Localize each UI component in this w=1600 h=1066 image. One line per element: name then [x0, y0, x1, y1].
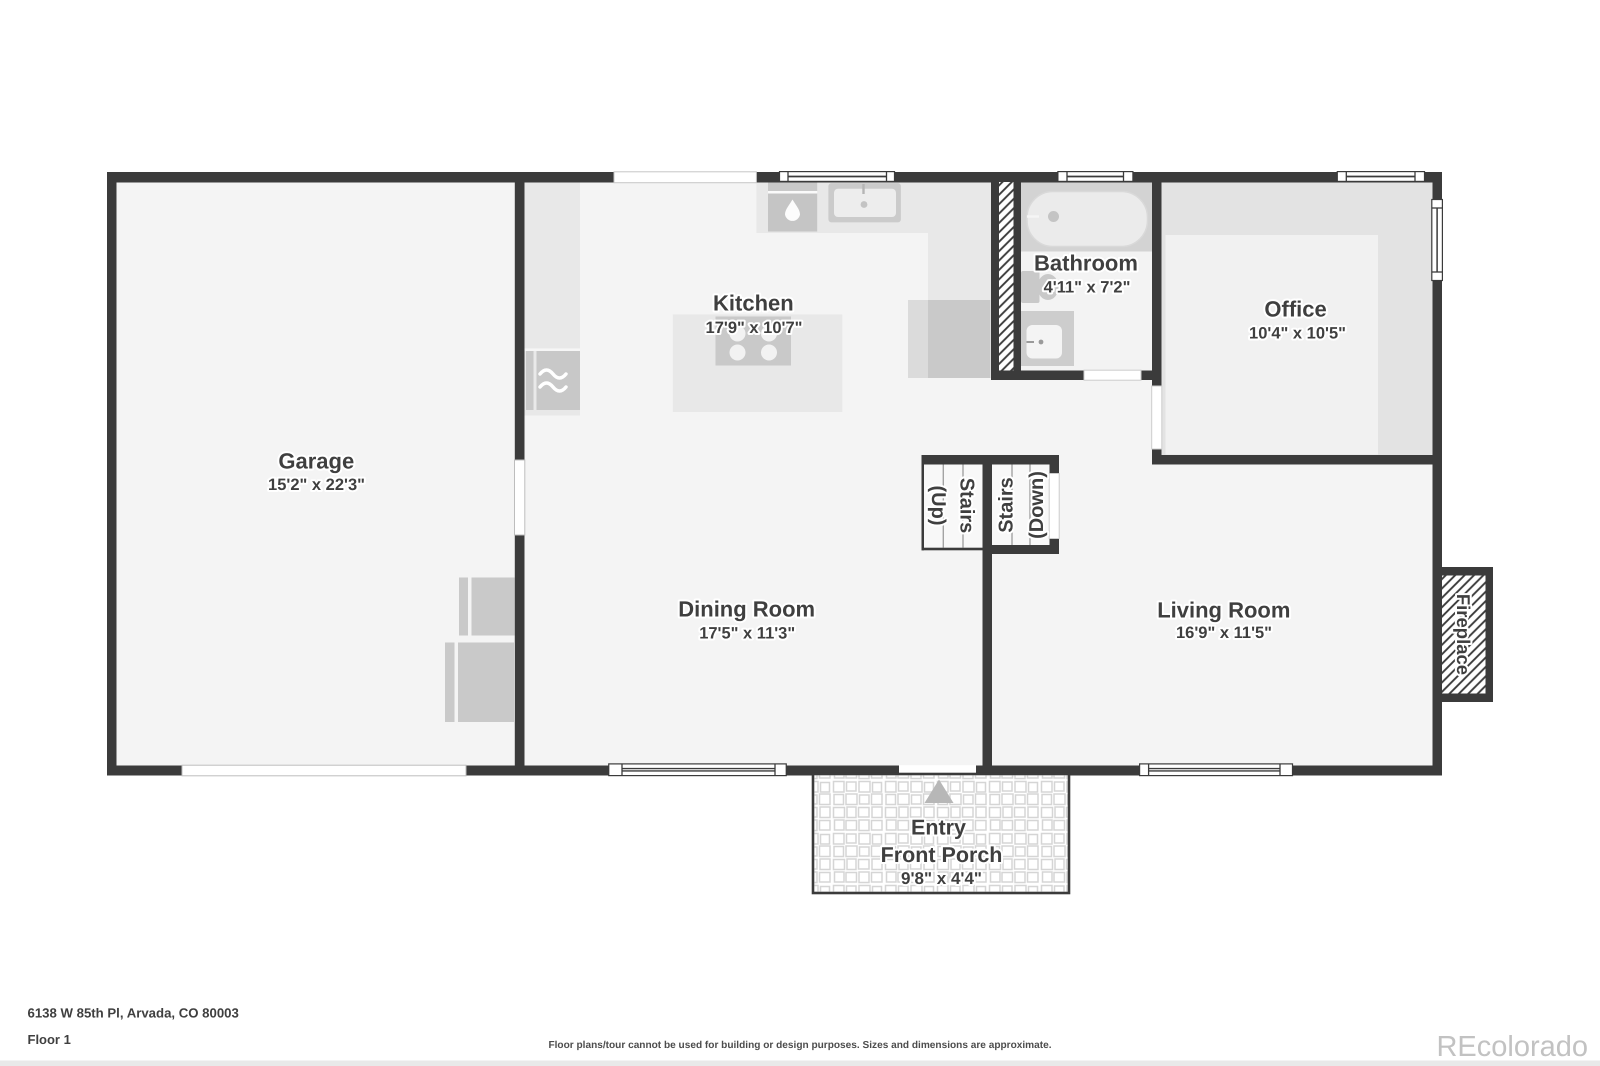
svg-text:Entry: Entry [911, 816, 966, 840]
svg-text:Stairs: Stairs [956, 478, 978, 534]
svg-text:9'8" x 4'4": 9'8" x 4'4" [901, 869, 982, 888]
svg-text:Front Porch: Front Porch [881, 843, 1003, 867]
svg-text:Kitchen: Kitchen [713, 291, 794, 316]
svg-text:16'9" x 11'5": 16'9" x 11'5" [1176, 624, 1272, 642]
svg-text:6138 W 85th Pl, Arvada, CO 800: 6138 W 85th Pl, Arvada, CO 80003 [28, 1006, 239, 1021]
svg-text:Office: Office [1264, 297, 1326, 322]
svg-text:17'5" x 11'3": 17'5" x 11'3" [699, 624, 795, 642]
svg-text:Living Room: Living Room [1157, 598, 1290, 623]
svg-text:Bathroom: Bathroom [1034, 251, 1138, 276]
svg-text:10'4" x 10'5": 10'4" x 10'5" [1249, 325, 1346, 343]
svg-text:15'2" x 22'3": 15'2" x 22'3" [268, 476, 365, 494]
svg-text:(Up): (Up) [927, 486, 949, 526]
svg-text:Floor plans/tour cannot be use: Floor plans/tour cannot be used for buil… [548, 1040, 1051, 1051]
svg-text:Fireplace: Fireplace [1453, 594, 1474, 675]
svg-text:Floor 1: Floor 1 [28, 1032, 71, 1047]
svg-text:Garage: Garage [278, 449, 354, 474]
svg-text:Dining Room: Dining Room [678, 597, 815, 622]
svg-text:17'9" x 10'7": 17'9" x 10'7" [706, 319, 803, 337]
svg-text:4'11" x 7'2": 4'11" x 7'2" [1044, 279, 1131, 297]
svg-text:(Down): (Down) [1026, 471, 1048, 539]
svg-text:Stairs: Stairs [996, 477, 1018, 533]
svg-text:REcolorado: REcolorado [1436, 1031, 1588, 1063]
